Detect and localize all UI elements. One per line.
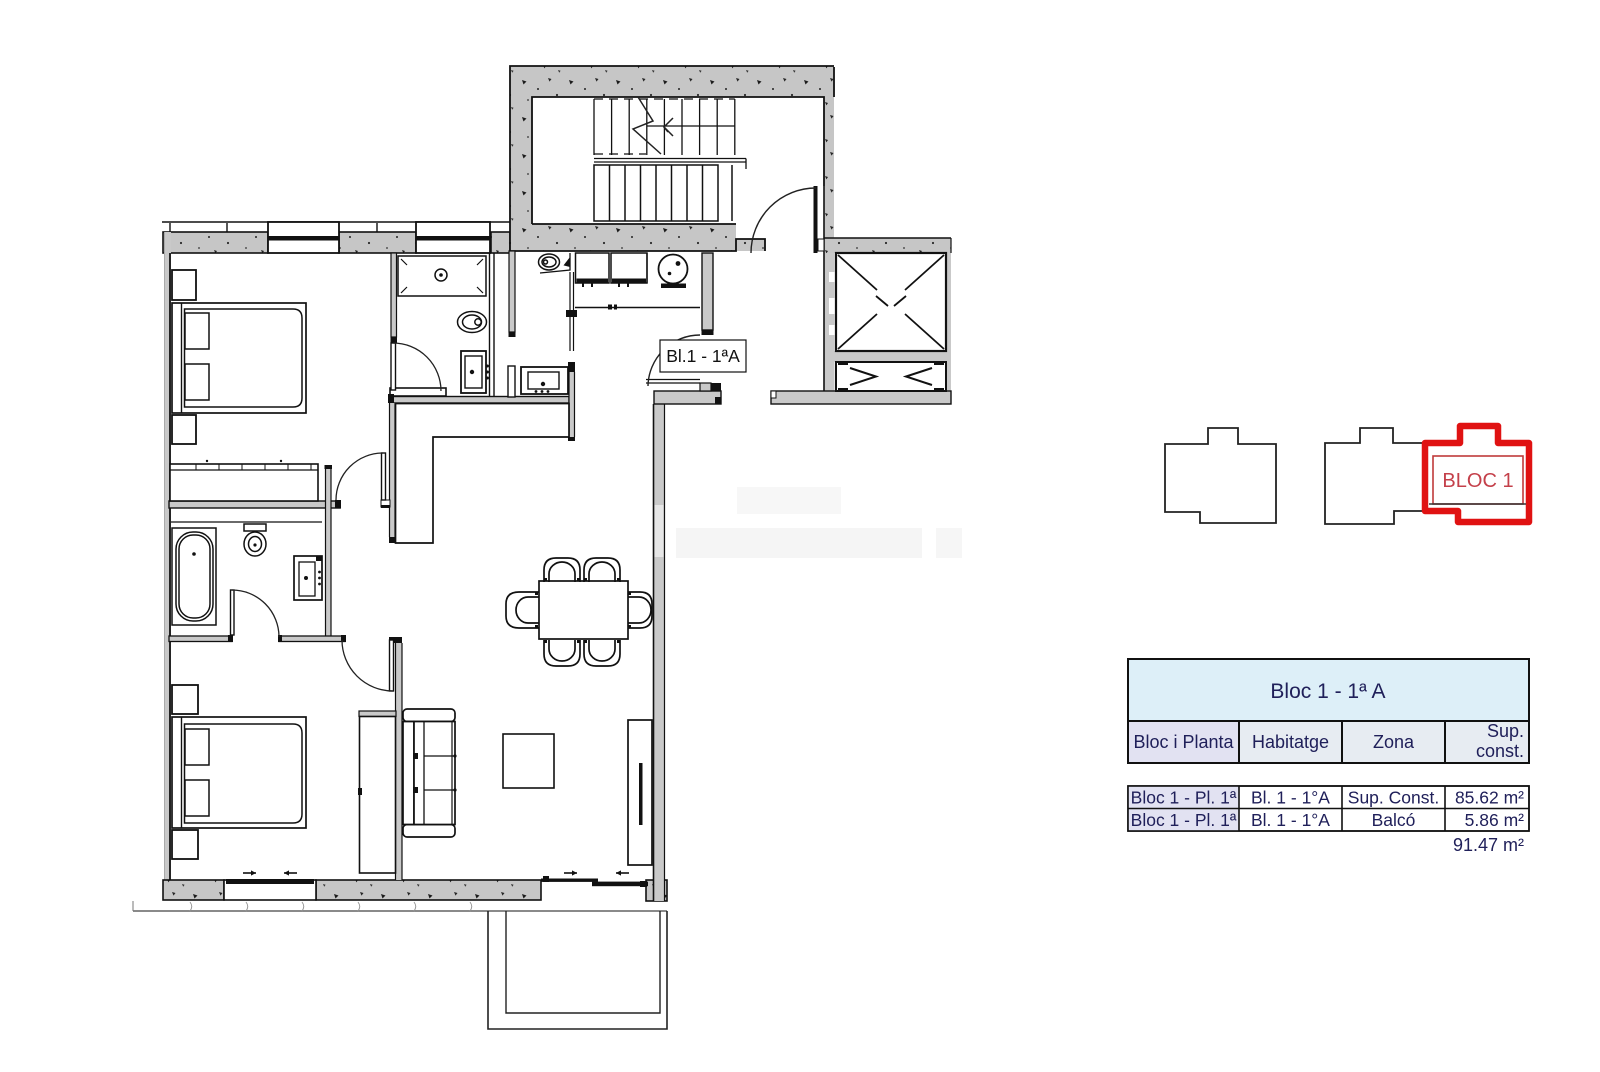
svg-text:91.47 m²: 91.47 m² [1453,835,1524,855]
svg-text:Balcó: Balcó [1372,810,1416,830]
svg-text:Bl. 1 - 1°A: Bl. 1 - 1°A [1251,810,1330,830]
svg-text:85.62 m²: 85.62 m² [1455,788,1524,808]
svg-text:Bl.1 - 1ªA: Bl.1 - 1ªA [666,346,740,366]
svg-text:Bl. 1 - 1°A: Bl. 1 - 1°A [1251,788,1330,808]
svg-text:Sup. Const.: Sup. Const. [1348,788,1439,808]
svg-text:Zona: Zona [1373,732,1415,752]
svg-text:Sup.: Sup. [1487,721,1524,741]
svg-text:Bloc 1 - Pl. 1ª: Bloc 1 - Pl. 1ª [1131,788,1237,808]
svg-text:BLOC 1: BLOC 1 [1442,470,1513,492]
svg-text:5.86 m²: 5.86 m² [1465,810,1524,830]
svg-text:const.: const. [1476,741,1524,761]
svg-text:Bloc i Planta: Bloc i Planta [1133,732,1234,752]
svg-text:Habitatge: Habitatge [1252,732,1329,752]
svg-text:Bloc 1 - 1ª A: Bloc 1 - 1ª A [1270,680,1385,703]
svg-text:Bloc 1 - Pl. 1ª: Bloc 1 - Pl. 1ª [1131,810,1237,830]
